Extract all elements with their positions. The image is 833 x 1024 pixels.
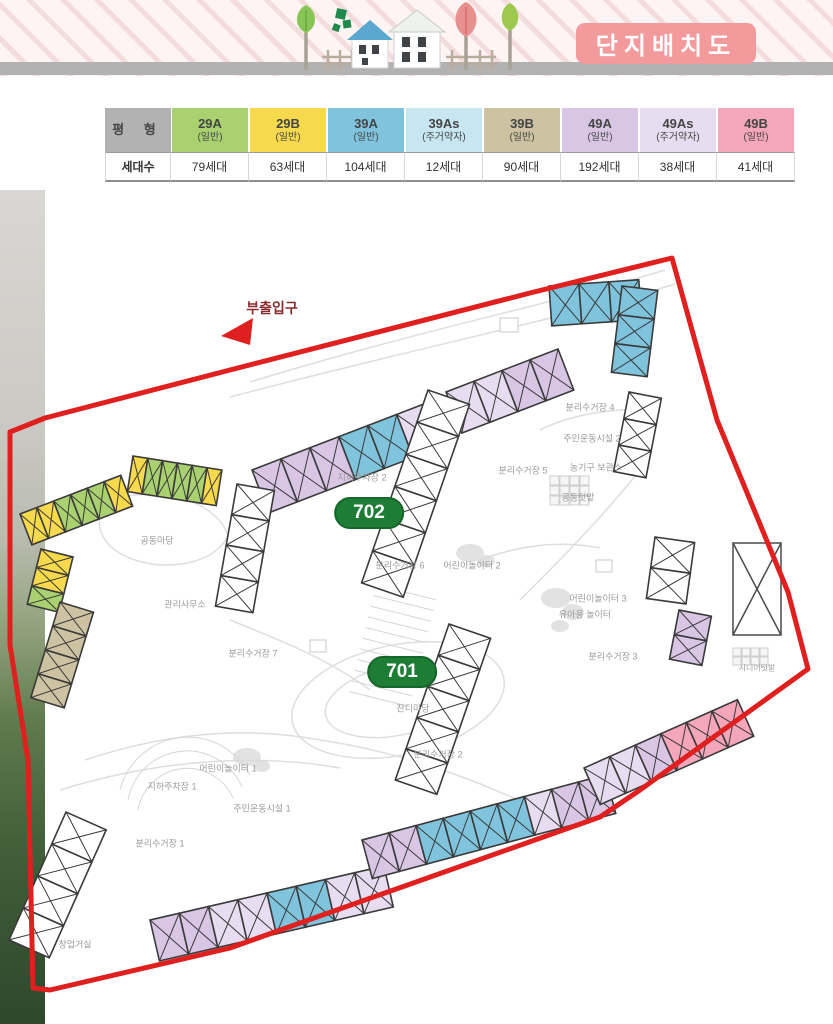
dark-green-tree-icon xyxy=(332,8,352,32)
white-house-icon xyxy=(389,10,445,68)
label-lawn-yard: 잔디마당 xyxy=(396,702,429,715)
building-wing-w6 xyxy=(215,484,274,613)
building-wing-w11 xyxy=(9,812,106,958)
label-recycling-2: 분리수거장 2 xyxy=(414,748,463,761)
label-recycling-3: 분리수거장 3 xyxy=(589,650,638,663)
label-recycling-4: 분리수거장 4 xyxy=(566,401,615,414)
green-tree-2-icon xyxy=(502,3,519,70)
building-wing-w1b xyxy=(446,349,574,433)
blue-roof-house-icon xyxy=(347,20,393,68)
label-community-garden: 공동텃밭 xyxy=(561,491,594,504)
label-senior-garden: 시니어텃밭 xyxy=(739,663,776,674)
green-tree-icon xyxy=(297,5,315,70)
label-common-yard: 공동마당 xyxy=(140,534,173,547)
building-wing-w16 xyxy=(646,537,694,604)
pink-tree-icon xyxy=(455,2,476,70)
label-recycling-7: 분리수거장 7 xyxy=(229,647,278,660)
label-children-playground-2: 어린이놀이터 2 xyxy=(443,559,500,572)
label-recycling-1: 분리수거장 1 xyxy=(136,837,185,850)
building-badge-701: 701 xyxy=(367,656,437,688)
building-badge-702: 702 xyxy=(334,497,404,529)
label-recycling-5: 분리수거장 5 xyxy=(499,464,548,477)
building-wing-w9 xyxy=(27,549,73,612)
label-management-office: 관리사무소 xyxy=(164,598,205,611)
building-wing-w15 xyxy=(669,610,711,665)
building-wing-w10 xyxy=(31,602,94,708)
label-farm-tool-storage: 농기구 보관소 xyxy=(570,461,622,474)
site-plan-page: 단지배치도 평 형 세대수 29A (일반) 79세대 29B (일반) 63세… xyxy=(0,0,833,1024)
label-recycling-6: 분리수거장 6 xyxy=(376,559,425,572)
label-exercise-facility-2: 주민운동시설 2 xyxy=(563,432,620,445)
building-wing-w7 xyxy=(127,456,222,506)
page-header: 단지배치도 xyxy=(0,0,833,76)
label-children-playground-1: 어린이놀이터 1 xyxy=(199,762,256,775)
label-sub-entrance: 부출입구 xyxy=(246,298,298,318)
sub-entrance-arrow-icon xyxy=(221,318,253,345)
page-title: 단지배치도 xyxy=(576,23,756,64)
label-startup-room: 창업거실 xyxy=(58,938,91,951)
label-exercise-facility-1: 주민운동시설 1 xyxy=(233,802,290,815)
building-wing-w8 xyxy=(20,475,133,545)
site-plan-map xyxy=(0,0,833,1024)
building-wing-w14 xyxy=(584,700,754,805)
label-underground-parking-2: 지하주차장 2 xyxy=(338,471,387,484)
label-children-playground-3: 어린이놀이터 3 xyxy=(569,592,626,605)
label-toddler-playground: 유아용 놀이터 xyxy=(559,608,611,621)
label-underground-parking-1: 지하주차장 1 xyxy=(148,780,197,793)
building-wing-w12 xyxy=(150,866,393,961)
